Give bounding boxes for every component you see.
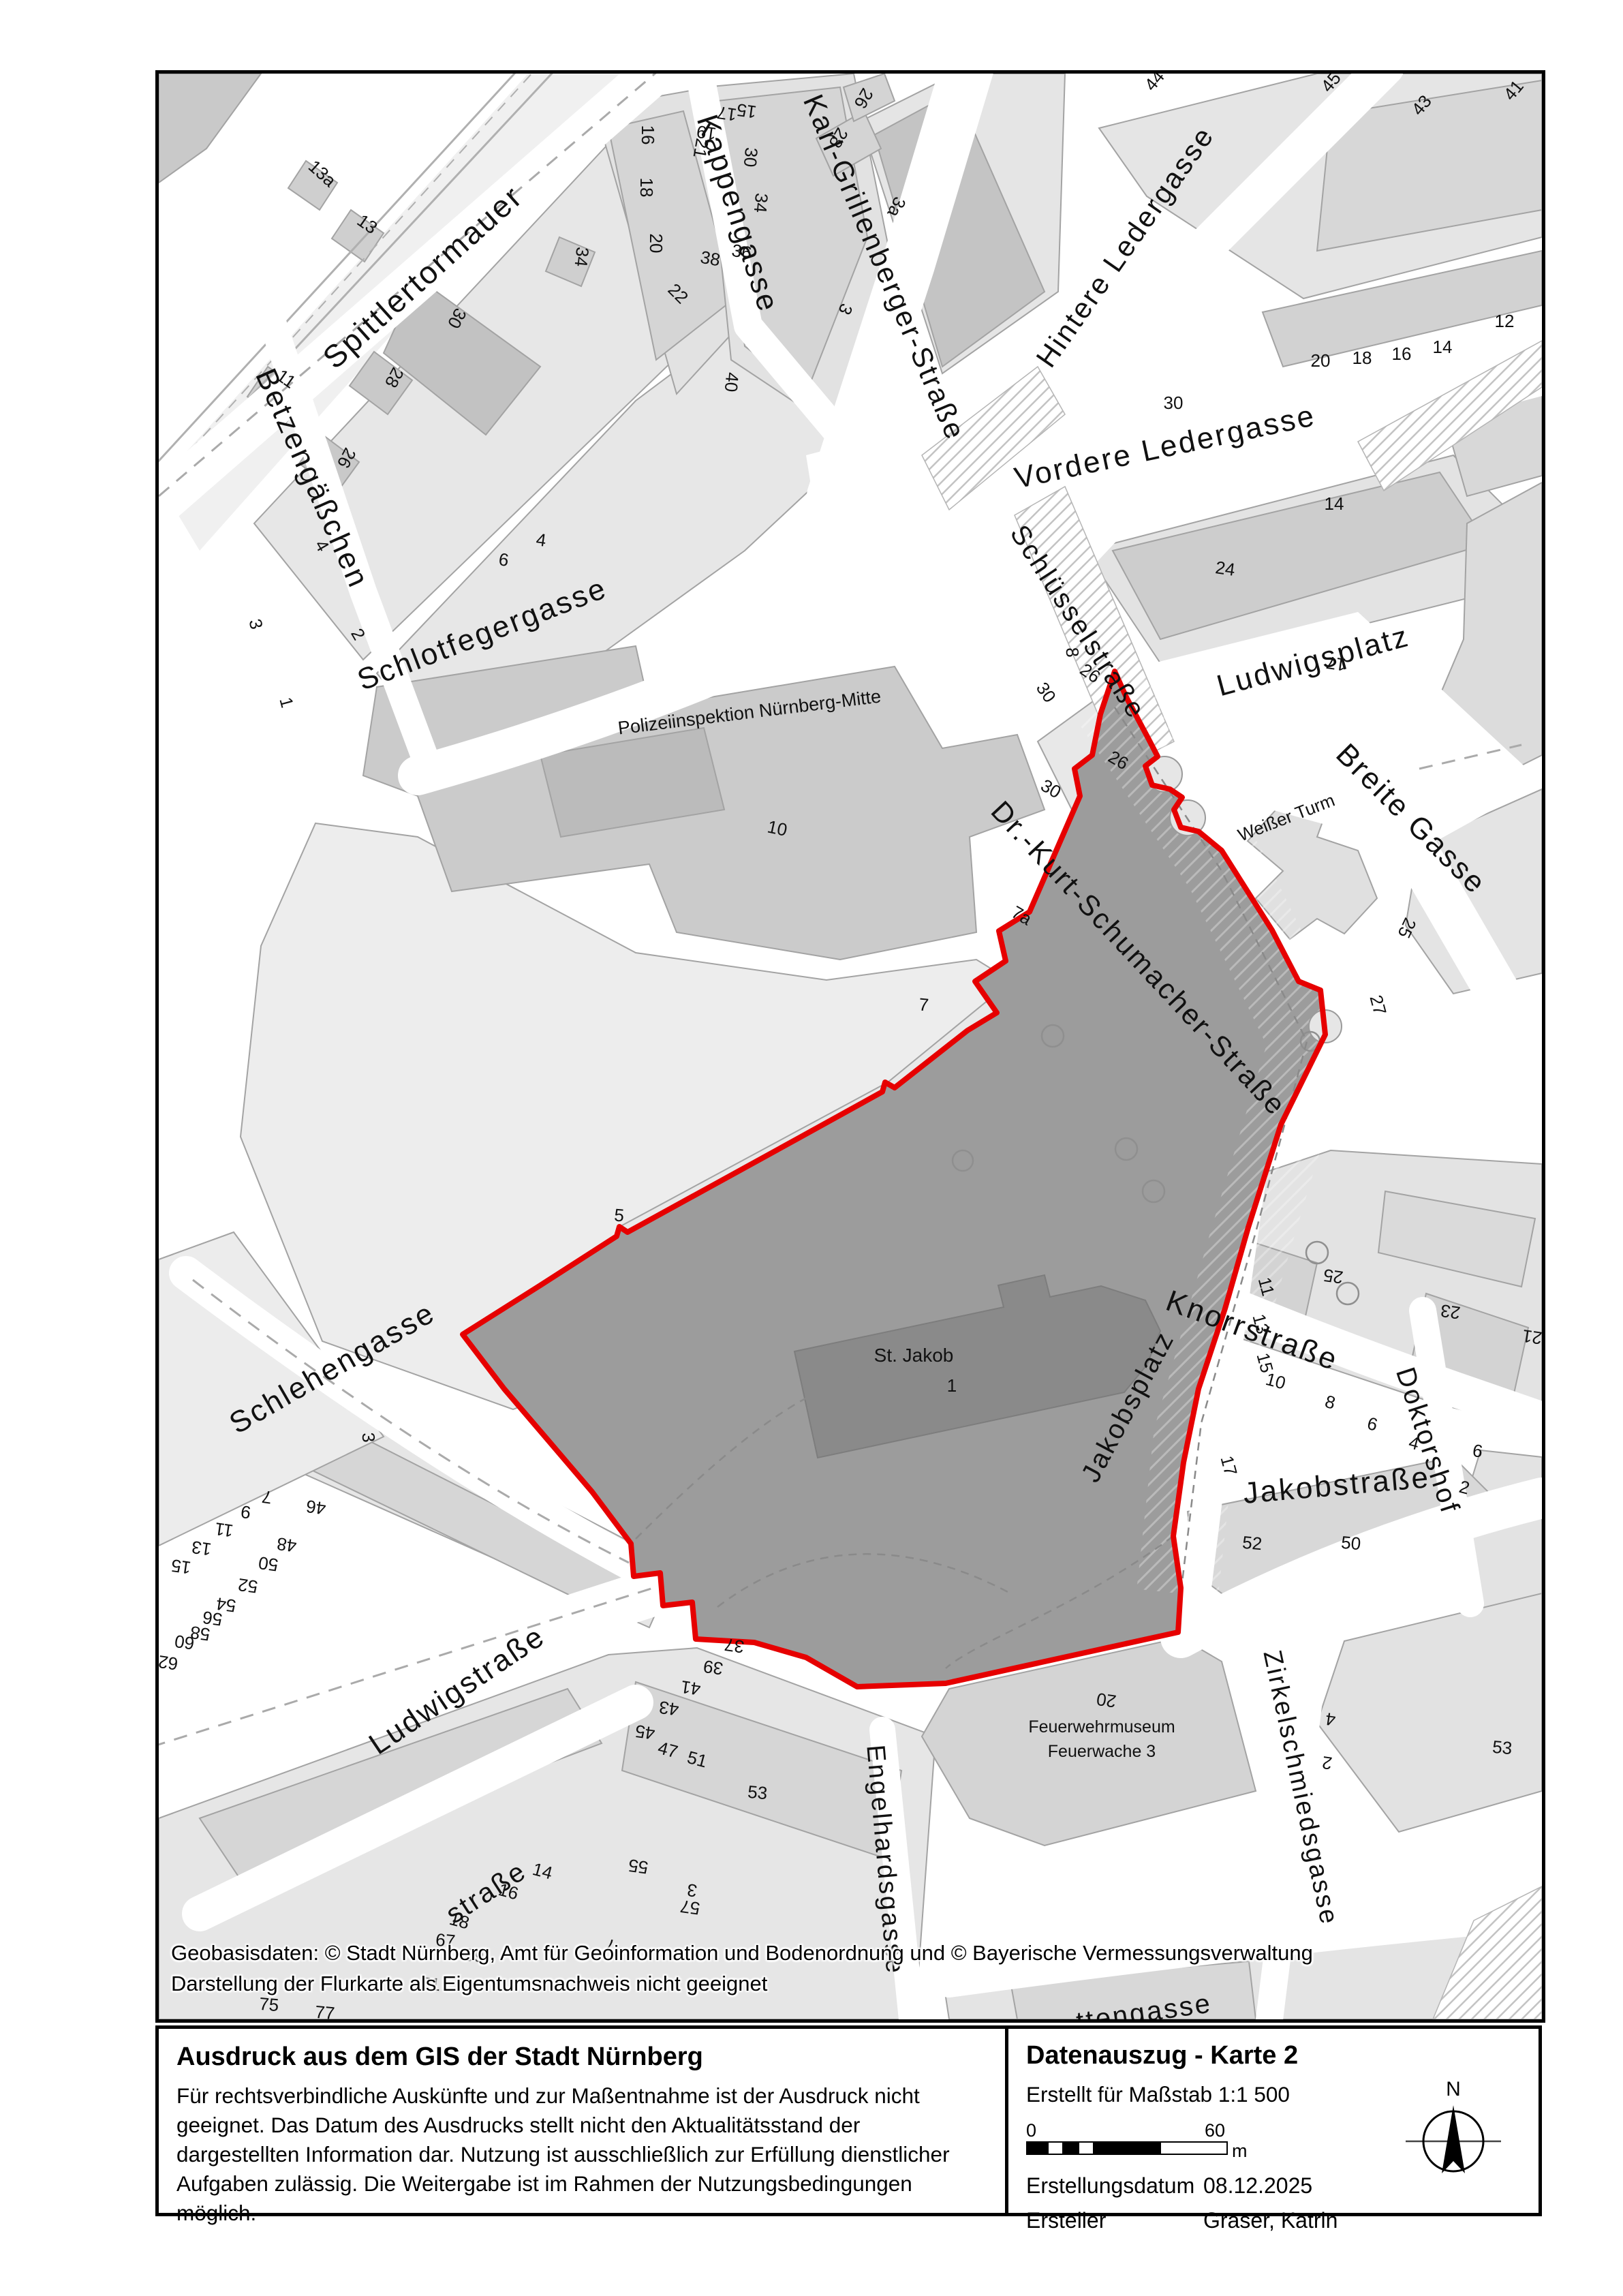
map-canvas: 13a1311343028264231641618202215171921303… (159, 74, 1542, 2019)
copyright-line1: Geobasisdaten: © Stadt Nürnberg, Amt für… (171, 1938, 1313, 1968)
svg-text:N: N (1446, 2078, 1461, 2100)
house-number: 52 (236, 1574, 259, 1597)
house-number: 34 (571, 246, 593, 268)
copyright-note: Geobasisdaten: © Stadt Nürnberg, Amt für… (171, 1938, 1313, 1999)
house-number: 24 (1214, 557, 1237, 580)
house-number: 48 (275, 1533, 298, 1557)
house-number: 3 (245, 617, 267, 632)
house-number: 38 (699, 247, 722, 271)
house-number: 60 (173, 1631, 196, 1654)
house-number: 21 (1521, 1326, 1542, 1349)
house-number: 62 (159, 1651, 179, 1674)
house-number: 50 (1340, 1532, 1361, 1554)
house-number: 7 (918, 994, 929, 1015)
house-number: 37 (723, 1634, 745, 1657)
scalebar-segment (1093, 2143, 1160, 2154)
house-number: 50 (257, 1552, 279, 1576)
house-number: 30 (1164, 393, 1184, 413)
house-number: 18 (636, 178, 657, 198)
house-number: 77 (314, 2002, 335, 2019)
parcel (159, 74, 261, 183)
scale-start: 0 (1026, 2120, 1036, 2141)
house-number: 30 (1032, 678, 1060, 706)
disclaimer-line: Für rechtsverbindliche Auskünfte und zur… (176, 2081, 987, 2111)
poi-label: Feuerwache 3 (1048, 1742, 1156, 1761)
house-number: 23 (1439, 1300, 1462, 1323)
creator-row: Ersteller Graser, Katrin (1026, 2208, 1521, 2233)
house-number: 15 (170, 1555, 192, 1578)
house-number: 55 (627, 1855, 649, 1878)
house-number: 43 (658, 1697, 680, 1720)
house-number: 46 (305, 1496, 327, 1519)
house-number: 40 (721, 371, 743, 393)
house-number: 16 (638, 125, 658, 145)
house-number: 30 (740, 147, 762, 168)
house-number: 9 (1471, 1440, 1484, 1462)
creation-date-value: 08.12.2025 (1203, 2173, 1312, 2199)
disclaimer-line: Aufgaben zulässig. Die Weitergabe ist im… (176, 2169, 987, 2228)
gis-printout-page: { "copyright": { "line1": "Geobasisdaten… (0, 0, 1623, 2296)
copyright-line2: Darstellung der Flurkarte als Eigentumsn… (171, 1968, 1313, 1999)
house-number: 10 (1263, 1368, 1288, 1393)
disclaimer-line: dargestellten Information dar. Nutzung i… (176, 2140, 987, 2169)
house-number: 20 (1095, 1689, 1117, 1712)
house-number: 16 (1392, 343, 1412, 364)
disclaimer-title: Ausdruck aus dem GIS der Stadt Nürnberg (176, 2042, 987, 2072)
house-number: 41 (679, 1677, 702, 1700)
house-number: 3 (358, 1432, 379, 1443)
house-number: 2 (1320, 1752, 1333, 1774)
house-number: 6 (1365, 1413, 1380, 1435)
house-number: 44 (1140, 74, 1169, 95)
house-number: 8 (1323, 1391, 1338, 1413)
house-number: 14 (1325, 493, 1344, 514)
scale-bar: 0 60 m (1026, 2120, 1251, 2164)
map-frame: 13a1311343028264231641618202215171921303… (155, 70, 1545, 2023)
extract-title: Datenauszug - Karte 2 (1026, 2041, 1521, 2070)
creator-value: Graser, Katrin (1203, 2208, 1338, 2233)
creator-label: Ersteller (1026, 2208, 1203, 2233)
scale-unit: m (1232, 2141, 1248, 2162)
data-extract-box: Datenauszug - Karte 2 Erstellt für Maßst… (1005, 2025, 1542, 2216)
scalebar-segment (1079, 2143, 1093, 2154)
house-number: 1 (947, 1375, 957, 1396)
house-number: 14 (1433, 337, 1453, 357)
house-number: 12 (1495, 311, 1515, 331)
creation-date-label: Erstellungsdatum (1026, 2173, 1203, 2199)
info-panel: Ausdruck aus dem GIS der Stadt Nürnberg … (155, 2025, 1545, 2216)
house-number: 45 (634, 1721, 656, 1744)
scalebar-segment (1027, 2143, 1049, 2154)
house-number: 53 (1491, 1736, 1513, 1758)
house-number: 39 (702, 1656, 724, 1679)
parcel (1317, 1593, 1542, 1832)
house-number: 13 (190, 1537, 213, 1560)
house-number: 10 (766, 816, 790, 840)
house-number: 1 (275, 695, 298, 710)
disclaimer-line: geeignet. Das Datum des Ausdrucks stellt… (176, 2111, 987, 2140)
house-number: 52 (1241, 1532, 1263, 1554)
north-arrow-icon: N (1395, 2077, 1511, 2192)
poi-label: Feuerwehrmuseum (1028, 1717, 1175, 1736)
disclaimer-box: Ausdruck aus dem GIS der Stadt Nürnberg … (155, 2025, 1008, 2216)
house-number: 5 (613, 1204, 625, 1225)
poi-label: St. Jakob (874, 1345, 954, 1366)
house-number: 11 (213, 1518, 234, 1541)
house-number: 20 (646, 234, 666, 254)
scalebar-segment (1062, 2143, 1079, 2154)
house-number: 25 (1322, 1265, 1344, 1288)
house-number: 15 (735, 100, 758, 123)
scalebar-segment (1049, 2143, 1062, 2154)
house-number: 18 (1352, 348, 1372, 368)
scalebar-segment (1161, 2143, 1226, 2154)
house-number: 27 (1365, 993, 1390, 1017)
house-number: 53 (747, 1781, 768, 1803)
scale-end: 60 (1205, 2120, 1225, 2141)
house-number: 20 (1311, 350, 1331, 371)
